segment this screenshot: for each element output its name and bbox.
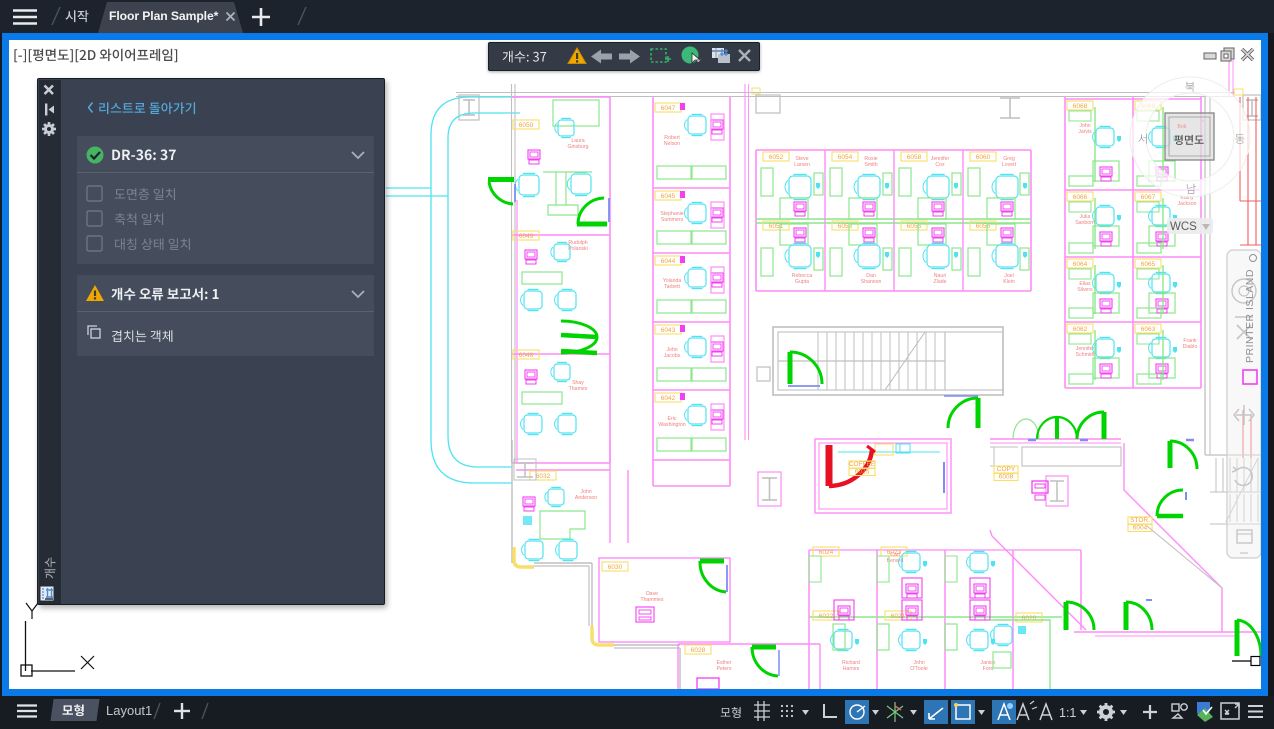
svg-text:6065: 6065 — [1141, 261, 1156, 268]
svg-text:STOR.: STOR. — [1130, 517, 1150, 524]
svg-text:6030: 6030 — [608, 564, 623, 571]
svg-text:Tarbett: Tarbett — [664, 284, 680, 290]
svg-text:Lovett: Lovett — [1002, 162, 1017, 168]
svg-text:6050: 6050 — [519, 122, 534, 129]
svg-text:6028: 6028 — [691, 647, 706, 654]
svg-text:6024: 6024 — [819, 549, 834, 556]
svg-text:6043: 6043 — [661, 327, 676, 334]
svg-text:Larsen: Larsen — [794, 162, 810, 168]
svg-text:1:1: 1:1 — [1059, 706, 1076, 720]
svg-text:Ginsburg: Ginsburg — [567, 144, 588, 150]
svg-text:Sanborn: Sanborn — [1075, 220, 1095, 226]
svg-text:6004: 6004 — [1133, 525, 1148, 532]
svg-text:Anderson: Anderson — [575, 495, 597, 501]
svg-text:6064: 6064 — [1073, 261, 1088, 268]
svg-text:Shannon: Shannon — [861, 279, 882, 285]
svg-text:6042: 6042 — [661, 395, 676, 402]
svg-text:O'Toole: O'Toole — [910, 666, 928, 672]
svg-text:Polanski: Polanski — [568, 246, 588, 252]
svg-text:Schmidt: Schmidt — [1076, 352, 1095, 358]
svg-text:Nelson: Nelson — [664, 141, 680, 147]
svg-text:Washington: Washington — [658, 422, 685, 428]
svg-text:Ford: Ford — [983, 666, 994, 672]
svg-text:6049: 6049 — [519, 233, 534, 240]
svg-text:6020: 6020 — [1022, 615, 1037, 622]
svg-text:Cox: Cox — [935, 162, 945, 168]
svg-text:Summers: Summers — [661, 217, 684, 223]
svg-text:6066: 6066 — [1073, 194, 1088, 201]
svg-text:Thammes: Thammes — [640, 597, 663, 603]
svg-text:6052: 6052 — [769, 154, 784, 161]
svg-text:6062: 6062 — [1073, 326, 1088, 333]
svg-text:Jarvis: Jarvis — [1078, 129, 1092, 135]
svg-text:6044: 6044 — [661, 258, 676, 265]
svg-text:Silvers: Silvers — [1077, 287, 1093, 293]
svg-text:PRINTER ISLAND: PRINTER ISLAND — [1244, 269, 1256, 363]
svg-text:6008: 6008 — [999, 474, 1014, 481]
svg-text:6058: 6058 — [907, 154, 922, 161]
svg-text:6048: 6048 — [519, 352, 534, 359]
svg-text:Smith: Smith — [864, 162, 877, 168]
svg-text:6063: 6063 — [1141, 326, 1156, 333]
svg-text:Jackson: Jackson — [1177, 201, 1196, 207]
svg-text:WCS: WCS — [1170, 221, 1197, 233]
svg-text:Zlade: Zlade — [934, 279, 947, 285]
svg-text:Diablo: Diablo — [1183, 344, 1198, 350]
svg-text:COPY: COPY — [997, 466, 1016, 473]
svg-text:COFFEE: COFFEE — [849, 461, 876, 468]
svg-text:6032: 6032 — [536, 473, 551, 480]
svg-text:6025: 6025 — [855, 469, 870, 476]
svg-text:Gupta: Gupta — [795, 279, 809, 285]
svg-text:Thames: Thames — [569, 386, 588, 392]
svg-text:6068: 6068 — [1073, 103, 1088, 110]
svg-text:Klein: Klein — [1003, 279, 1015, 285]
svg-text:6045: 6045 — [661, 193, 676, 200]
svg-text:Jacobs: Jacobs — [664, 353, 681, 359]
svg-text:6021: 6021 — [891, 613, 906, 620]
svg-text:6022: 6022 — [819, 613, 834, 620]
svg-text:6054: 6054 — [838, 154, 853, 161]
svg-text:6060: 6060 — [976, 154, 991, 161]
svg-text:Peters: Peters — [717, 666, 732, 672]
svg-text:Hames: Hames — [843, 666, 860, 672]
svg-text:6047: 6047 — [661, 105, 676, 112]
